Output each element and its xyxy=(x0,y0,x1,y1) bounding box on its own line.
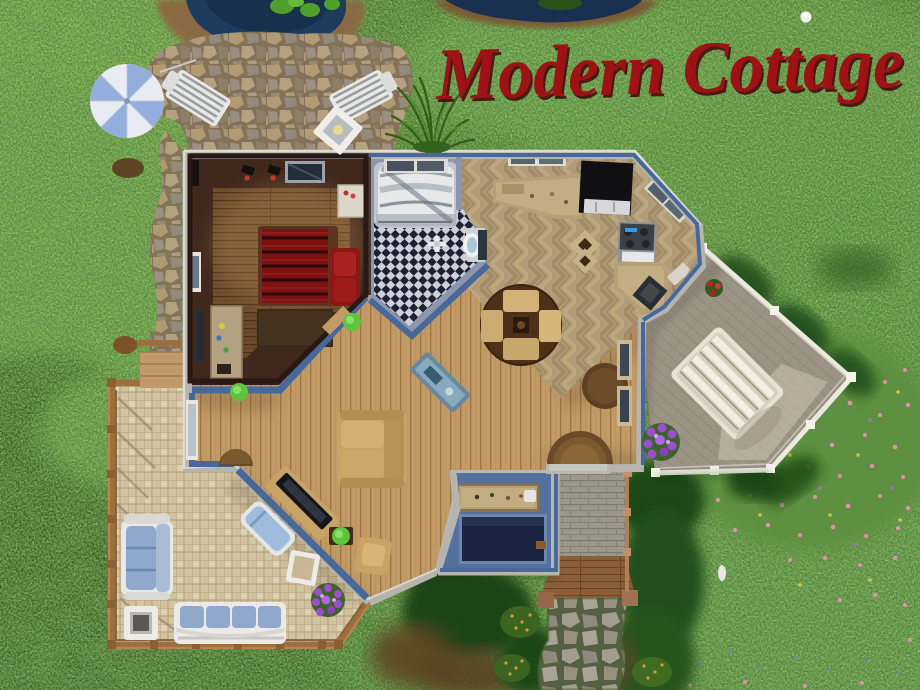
svg-text:Modern Cottage: Modern Cottage xyxy=(434,22,905,116)
